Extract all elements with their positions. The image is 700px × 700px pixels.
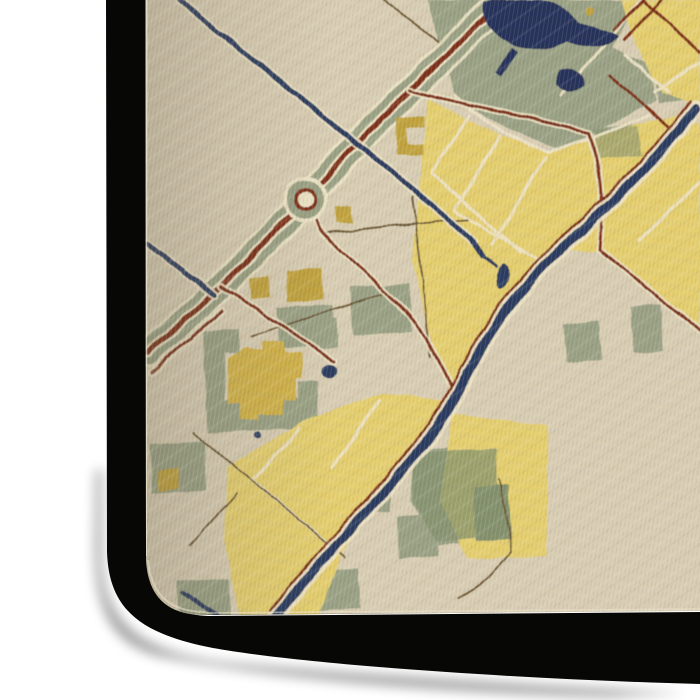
canvas-print [0, 0, 700, 700]
left-fold-highlight [146, 0, 147, 556]
map-face [100, 0, 700, 625]
canvas-print-photo [0, 0, 700, 700]
brushstroke-texture [100, 0, 700, 625]
